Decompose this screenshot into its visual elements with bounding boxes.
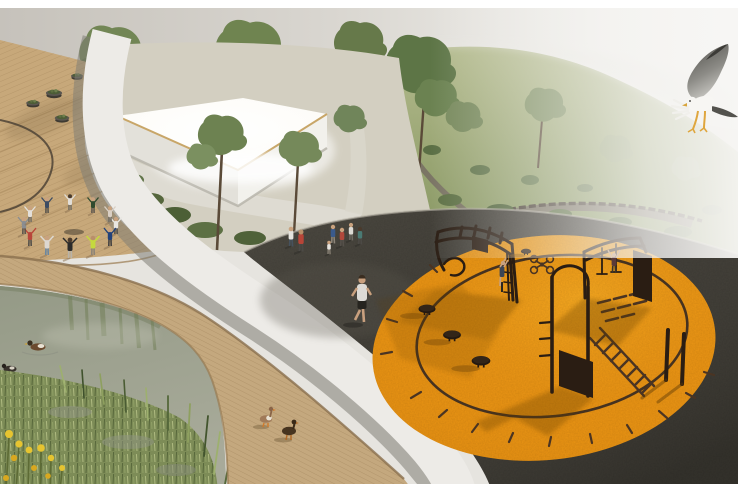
gull-eye xyxy=(689,100,691,102)
park-render-image xyxy=(0,0,738,492)
frame-bottom xyxy=(0,484,738,492)
gull-head xyxy=(687,97,697,107)
render-canvas xyxy=(0,0,738,492)
atmospheric-fog xyxy=(430,8,738,258)
frame-top xyxy=(0,0,738,8)
